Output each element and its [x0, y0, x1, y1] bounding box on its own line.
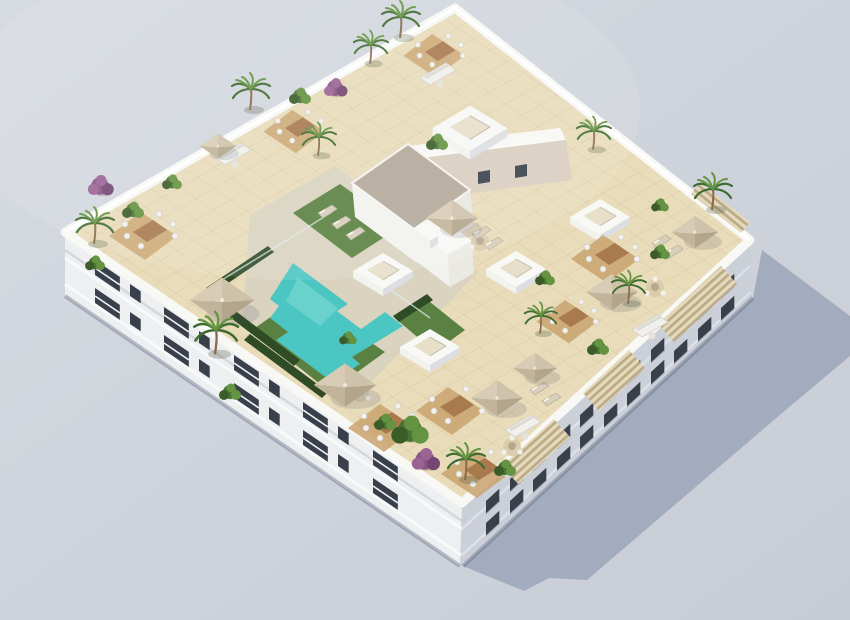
architectural-render — [0, 0, 850, 620]
